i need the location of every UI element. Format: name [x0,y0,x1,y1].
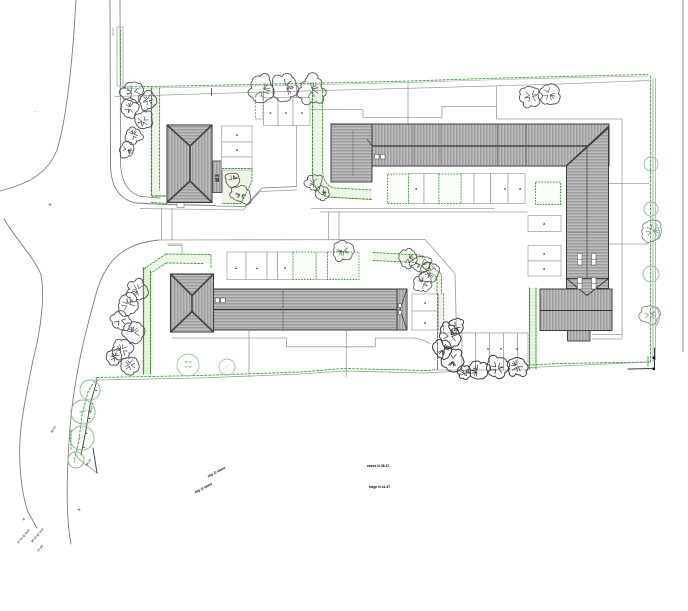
svg-text:·: · [34,109,36,115]
svg-text:ridge N 41.37: ridge N 41.37 [369,485,390,489]
svg-text:▲: ▲ [256,266,259,270]
svg-text:s: s [500,346,502,351]
svg-text:+: + [77,508,81,514]
svg-text:s: s [487,346,489,351]
svg-text:37.95: 37.95 [185,365,192,369]
svg-text:s: s [516,346,518,351]
svg-text:s: s [301,110,303,115]
svg-text:▲: ▲ [235,266,238,270]
svg-text:s: s [236,132,238,137]
svg-text:s: s [285,110,287,115]
svg-text:eaves N 38.47: eaves N 38.47 [367,464,389,468]
svg-text:38.10: 38.10 [185,360,192,364]
svg-text:38.46: 38.46 [111,28,115,36]
svg-text:+: + [48,202,52,209]
svg-text:B3: B3 [215,174,221,182]
svg-text:s: s [270,110,272,115]
